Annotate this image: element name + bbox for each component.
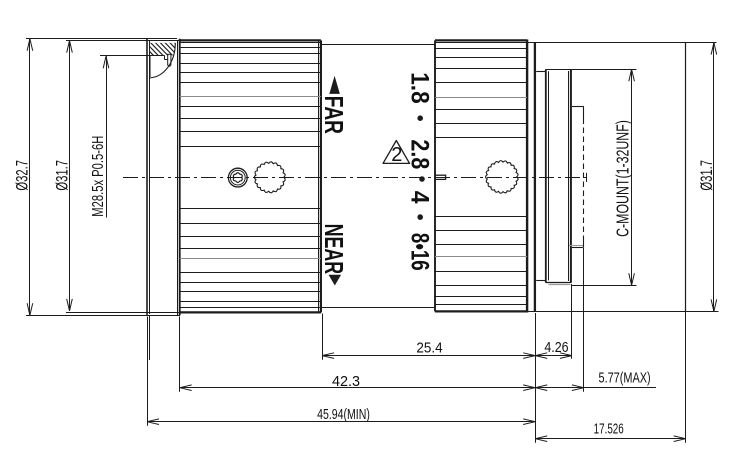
svg-text:45.94(MIN): 45.94(MIN): [317, 407, 370, 423]
svg-text:NEAR: NEAR: [319, 224, 349, 275]
svg-text:42.3: 42.3: [332, 374, 360, 390]
svg-text:2: 2: [391, 144, 402, 166]
svg-text:4: 4: [406, 191, 434, 204]
svg-text:1.8: 1.8: [406, 72, 434, 104]
svg-text:Ø32.7: Ø32.7: [12, 160, 31, 191]
svg-text:17.526: 17.526: [594, 422, 624, 438]
svg-text:8•16: 8•16: [406, 233, 434, 271]
svg-text:Ø31.7: Ø31.7: [697, 160, 716, 191]
svg-text:5.77(MAX): 5.77(MAX): [599, 371, 651, 387]
svg-text:2.8: 2.8: [406, 139, 434, 169]
svg-text:Ø31.7: Ø31.7: [52, 160, 71, 191]
svg-text:FAR: FAR: [319, 96, 349, 134]
svg-text:C-MOUNT(1-32UNF): C-MOUNT(1-32UNF): [613, 120, 633, 237]
svg-text:25.4: 25.4: [416, 340, 442, 356]
svg-text:4.26: 4.26: [544, 340, 568, 356]
svg-text:M28.5x P0.5-6H: M28.5x P0.5-6H: [90, 136, 107, 217]
